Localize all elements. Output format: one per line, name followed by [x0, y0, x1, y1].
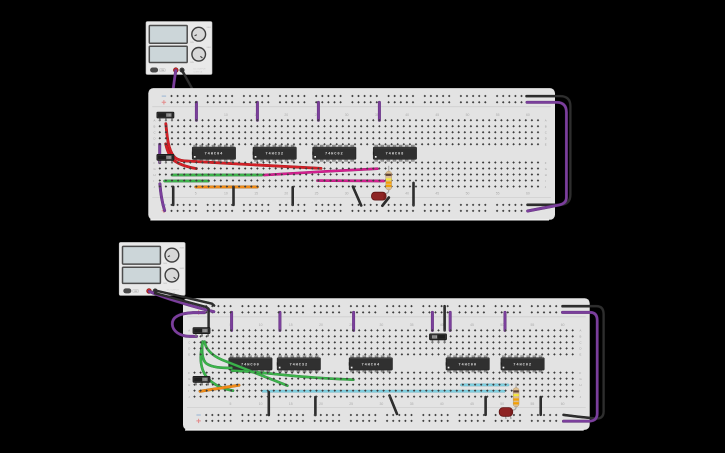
svg-text:C: C — [188, 341, 190, 345]
svg-text:F: F — [580, 371, 582, 375]
svg-text:C: C — [154, 131, 156, 135]
svg-text:40: 40 — [405, 113, 409, 117]
svg-text:E: E — [545, 143, 547, 147]
svg-text:G: G — [580, 377, 582, 381]
svg-text:B: B — [580, 335, 582, 339]
svg-text:55: 55 — [496, 192, 500, 196]
svg-text:25: 25 — [315, 192, 319, 196]
svg-text:60: 60 — [526, 113, 530, 117]
svg-text:25: 25 — [349, 402, 353, 406]
svg-text:ON: ON — [161, 70, 165, 72]
svg-text:30: 30 — [380, 402, 384, 406]
svg-text:20: 20 — [284, 113, 288, 117]
svg-text:55: 55 — [496, 113, 500, 117]
svg-text:MIN: MIN — [163, 283, 167, 285]
svg-text:30: 30 — [345, 113, 349, 117]
svg-text:DC OUTPUT: DC OUTPUT — [167, 289, 180, 291]
svg-text:B: B — [545, 125, 547, 129]
svg-text:0-30V 5A: 0-30V 5A — [194, 71, 203, 74]
svg-text:D: D — [580, 347, 582, 351]
svg-text:20: 20 — [319, 402, 323, 406]
svg-text:C: C — [580, 341, 582, 345]
svg-text:B: B — [154, 125, 156, 129]
svg-text:74HC08: 74HC08 — [386, 153, 405, 157]
svg-text:G: G — [545, 167, 547, 171]
svg-text:50: 50 — [466, 192, 470, 196]
svg-text:D: D — [545, 137, 547, 141]
svg-text:74HC32: 74HC32 — [289, 363, 308, 367]
svg-text:F: F — [188, 371, 190, 375]
svg-text:15: 15 — [254, 192, 258, 196]
svg-text:10: 10 — [259, 402, 263, 406]
svg-text:60: 60 — [526, 192, 530, 196]
svg-text:H: H — [154, 173, 156, 177]
svg-text:15: 15 — [289, 323, 293, 327]
svg-text:74HC04: 74HC04 — [205, 153, 224, 157]
svg-text:35: 35 — [410, 402, 414, 406]
svg-text:74HC04: 74HC04 — [361, 363, 380, 367]
svg-text:A: A — [154, 119, 156, 123]
svg-text:E: E — [188, 353, 190, 357]
svg-text:40: 40 — [405, 192, 409, 196]
svg-text:H: H — [188, 383, 190, 387]
svg-text:40: 40 — [440, 402, 444, 406]
svg-text:A: A — [545, 119, 547, 123]
svg-text:ON: ON — [134, 291, 138, 293]
svg-text:74HC00: 74HC00 — [241, 363, 260, 367]
svg-text:10: 10 — [224, 192, 228, 196]
svg-text:30: 30 — [345, 192, 349, 196]
svg-text:55: 55 — [531, 323, 535, 327]
svg-text:E: E — [154, 143, 156, 147]
svg-text:20: 20 — [319, 323, 323, 327]
svg-text:F: F — [154, 161, 156, 165]
svg-text:F: F — [545, 161, 547, 165]
svg-text:55: 55 — [531, 402, 535, 406]
svg-text:10: 10 — [224, 113, 228, 117]
svg-text:74HC00: 74HC00 — [458, 363, 477, 367]
svg-text:50: 50 — [500, 402, 504, 406]
svg-text:40: 40 — [440, 323, 444, 327]
svg-text:MAX: MAX — [207, 26, 212, 29]
svg-text:DC OUTPUT: DC OUTPUT — [194, 69, 207, 71]
svg-text:60: 60 — [561, 323, 565, 327]
svg-text:5: 5 — [195, 192, 197, 196]
svg-text:H: H — [545, 173, 547, 177]
svg-text:5: 5 — [229, 402, 231, 406]
svg-text:45: 45 — [470, 323, 474, 327]
svg-text:A: A — [580, 329, 582, 333]
svg-text:MAX: MAX — [180, 267, 185, 270]
svg-text:15: 15 — [289, 402, 293, 406]
svg-text:MIN: MIN — [163, 263, 167, 265]
svg-text:G: G — [154, 167, 156, 171]
svg-text:74HC32: 74HC32 — [265, 153, 284, 157]
svg-text:45: 45 — [435, 113, 439, 117]
svg-text:E: E — [580, 353, 582, 357]
svg-text:H: H — [580, 383, 582, 387]
svg-text:A: A — [188, 329, 190, 333]
svg-text:45: 45 — [435, 192, 439, 196]
svg-text:60: 60 — [561, 402, 565, 406]
svg-text:45: 45 — [470, 402, 474, 406]
svg-text:D: D — [154, 137, 156, 141]
svg-text:MIN: MIN — [190, 62, 194, 64]
svg-text:30: 30 — [380, 323, 384, 327]
svg-text:C: C — [545, 131, 547, 135]
svg-text:10: 10 — [259, 323, 263, 327]
svg-text:74HC02: 74HC02 — [513, 363, 532, 367]
svg-text:D: D — [188, 347, 190, 351]
svg-text:50: 50 — [466, 113, 470, 117]
svg-text:G: G — [188, 377, 190, 381]
svg-text:35: 35 — [410, 323, 414, 327]
svg-text:MAX: MAX — [180, 247, 185, 250]
svg-text:MIN: MIN — [190, 42, 194, 44]
svg-text:74HC02: 74HC02 — [325, 153, 344, 157]
svg-text:MAX: MAX — [207, 46, 212, 49]
svg-text:20: 20 — [284, 192, 288, 196]
